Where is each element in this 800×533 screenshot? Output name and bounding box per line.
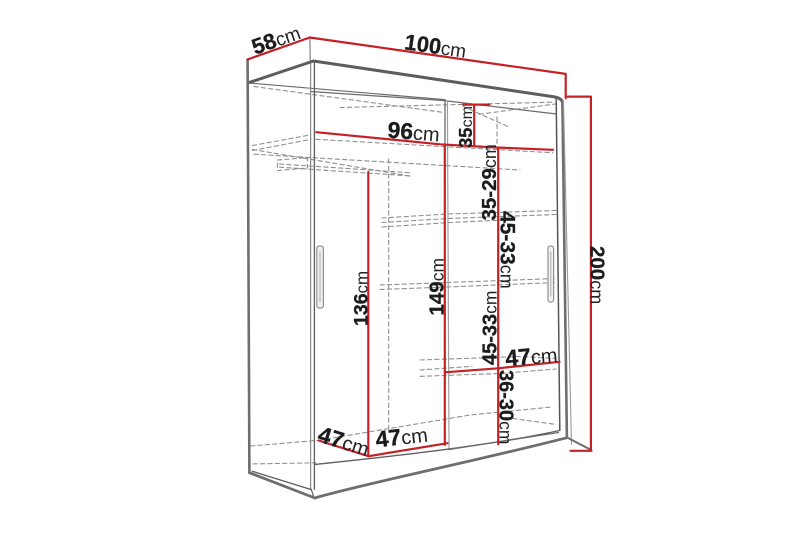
- svg-text:45-33cm: 45-33cm: [496, 211, 519, 289]
- svg-text:136cm: 136cm: [351, 271, 373, 326]
- svg-text:36-30cm: 36-30cm: [495, 370, 517, 444]
- svg-text:149cm: 149cm: [426, 258, 449, 316]
- svg-text:45-33cm: 45-33cm: [480, 291, 502, 365]
- svg-text:200cm: 200cm: [586, 246, 609, 304]
- svg-text:35cm: 35cm: [455, 106, 476, 148]
- svg-text:35-29cm: 35-29cm: [478, 144, 501, 220]
